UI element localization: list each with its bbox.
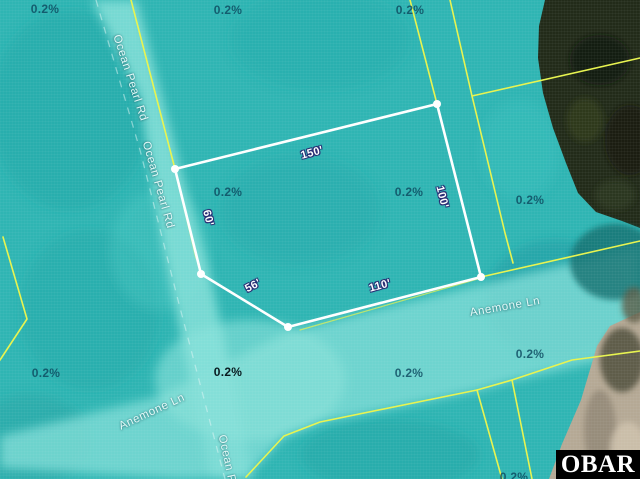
watermark-obar: OBAR xyxy=(556,450,640,479)
flood-zone-label: 0.2% xyxy=(500,470,529,479)
road-intersection xyxy=(155,320,345,440)
flood-zone-label: 0.2% xyxy=(32,366,61,380)
flood-zone-label: 0.2% xyxy=(214,365,243,379)
flood-zone-label: 0.2% xyxy=(214,185,243,199)
flood-zone-label: 0.2% xyxy=(396,3,425,17)
flood-zone-label: 0.2% xyxy=(516,347,545,361)
parcel-vertex xyxy=(171,165,179,173)
parcel-vertex xyxy=(477,273,485,281)
parcel-vertex xyxy=(433,100,441,108)
flood-zone-label: 0.2% xyxy=(395,185,424,199)
flood-zone-label: 0.2% xyxy=(516,193,545,207)
watermark-text: OBAR xyxy=(561,451,635,479)
map-viewport[interactable]: 0.2% 0.2% 0.2% 0.2% 0.2% 0.2% 0.2% 0.2% … xyxy=(0,0,640,479)
map-canvas xyxy=(0,0,640,479)
flood-zone-label: 0.2% xyxy=(395,366,424,380)
parcel-vertex xyxy=(197,270,205,278)
flood-zone-label: 0.2% xyxy=(31,2,60,16)
parcel-vertex xyxy=(284,323,292,331)
flood-zone-label: 0.2% xyxy=(214,3,243,17)
